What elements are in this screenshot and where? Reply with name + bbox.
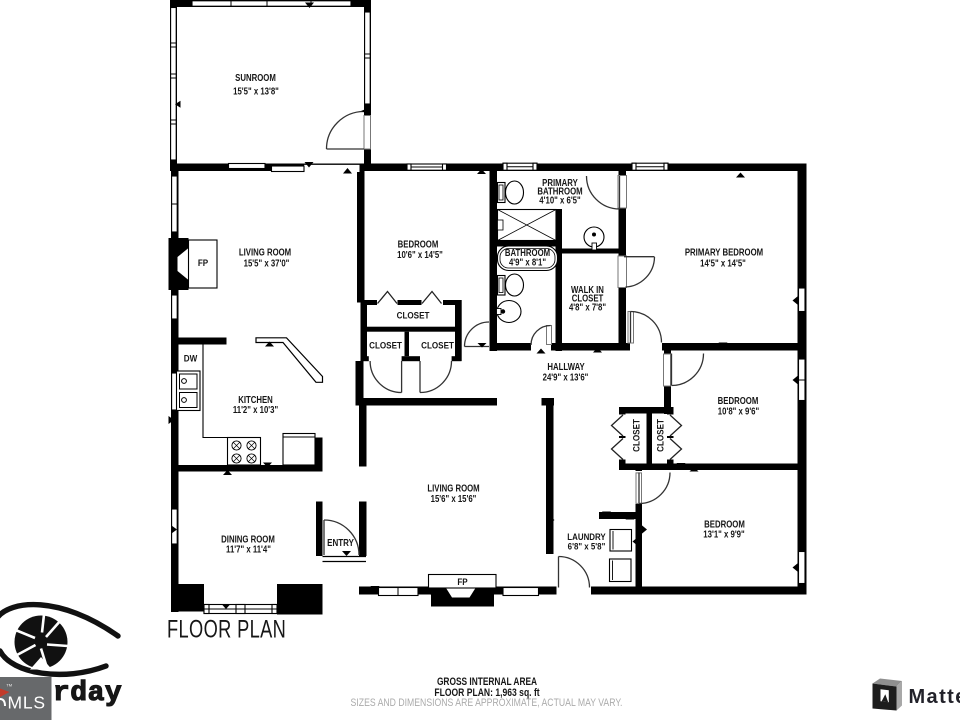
svg-text:4'8" x 7'8": 4'8" x 7'8"	[569, 302, 606, 313]
svg-text:4'10" x 6'5": 4'10" x 6'5"	[539, 195, 580, 206]
svg-text:rday: rday	[53, 678, 122, 709]
svg-text:15'5" x 37'0": 15'5" x 37'0"	[244, 258, 290, 269]
svg-text:10'6" x 14'5": 10'6" x 14'5"	[397, 249, 443, 260]
svg-text:4'9" x 8'1": 4'9" x 8'1"	[509, 257, 546, 268]
svg-text:CLOSET: CLOSET	[631, 418, 642, 452]
svg-text:SUNROOM: SUNROOM	[235, 72, 276, 83]
svg-text:6'8" x 5'8": 6'8" x 5'8"	[568, 541, 606, 552]
svg-text:DW: DW	[184, 353, 198, 364]
svg-text:13'1" x 9'9": 13'1" x 9'9"	[703, 529, 744, 540]
svg-text:FLOOR PLAN: FLOOR PLAN	[167, 615, 286, 644]
svg-text:CLOSET: CLOSET	[369, 340, 403, 351]
svg-text:BEDROOM: BEDROOM	[718, 395, 759, 406]
svg-text:LIVING ROOM: LIVING ROOM	[239, 247, 291, 258]
svg-text:CLOSET: CLOSET	[397, 310, 431, 321]
svg-text:MLS: MLS	[8, 693, 46, 713]
svg-text:FP: FP	[457, 577, 468, 588]
svg-text:BEDROOM: BEDROOM	[398, 239, 439, 250]
svg-text:LIVING ROOM: LIVING ROOM	[427, 483, 479, 494]
svg-text:10'8" x 9'6": 10'8" x 9'6"	[718, 406, 759, 417]
svg-text:11'2" x 10'3": 11'2" x 10'3"	[233, 404, 278, 415]
svg-text:CLOSET: CLOSET	[421, 340, 455, 351]
svg-text:CLOSET: CLOSET	[655, 418, 666, 452]
svg-text:FP: FP	[198, 258, 209, 269]
svg-text:Matte: Matte	[909, 686, 960, 708]
svg-text:HALLWAY: HALLWAY	[547, 361, 584, 372]
svg-text:11'7" x 11'4": 11'7" x 11'4"	[226, 544, 271, 555]
svg-text:ENTRY: ENTRY	[327, 537, 354, 548]
svg-text:15'5" x 13'8": 15'5" x 13'8"	[233, 86, 279, 97]
svg-text:PRIMARY BEDROOM: PRIMARY BEDROOM	[685, 247, 763, 258]
svg-text:14'5" x 14'5": 14'5" x 14'5"	[700, 258, 746, 269]
svg-text:SIZES AND DIMENSIONS ARE APPRO: SIZES AND DIMENSIONS ARE APPROXIMATE, AC…	[351, 697, 623, 709]
svg-text:™: ™	[6, 684, 13, 691]
svg-text:24'9" x 13'6": 24'9" x 13'6"	[543, 372, 589, 383]
svg-text:15'6" x 15'6": 15'6" x 15'6"	[431, 493, 477, 504]
